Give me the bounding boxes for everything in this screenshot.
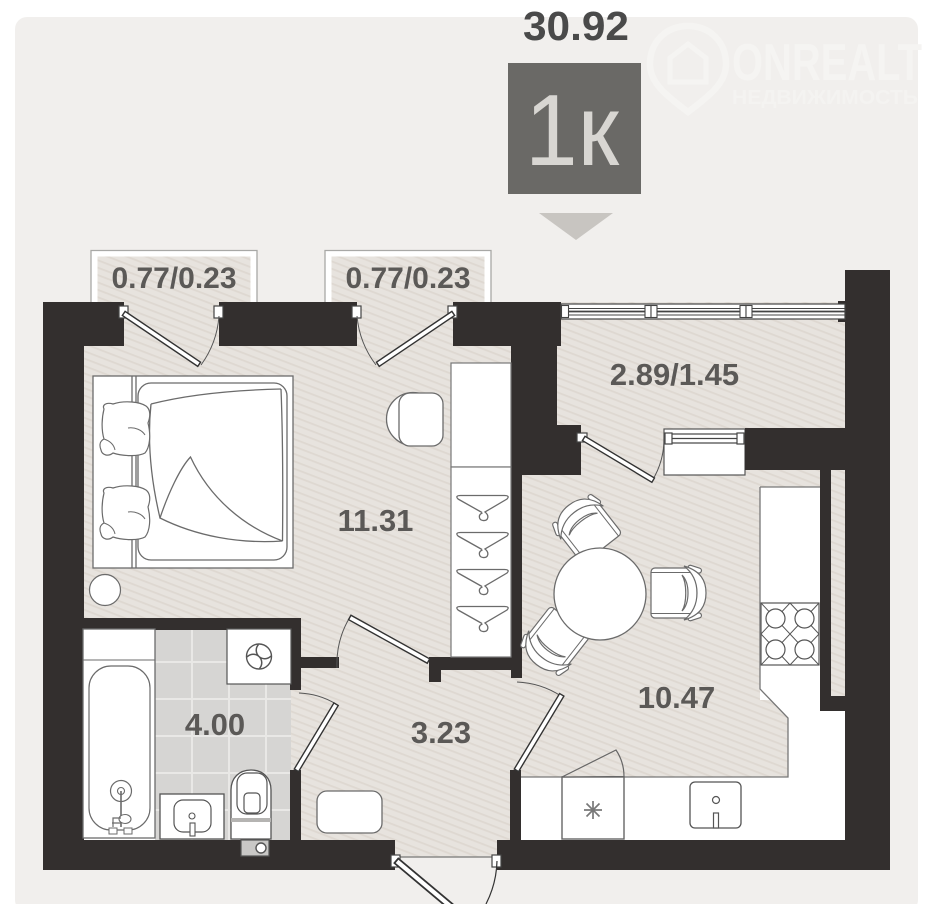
svg-text:3.23: 3.23 <box>411 715 471 750</box>
svg-text:2.89/1.45: 2.89/1.45 <box>610 357 739 392</box>
svg-text:30.92: 30.92 <box>523 3 629 49</box>
svg-text:4.00: 4.00 <box>185 707 245 742</box>
svg-text:НЕДВИЖИМОСТЬ: НЕДВИЖИМОСТЬ <box>732 87 918 109</box>
svg-text:ONREALT: ONREALT <box>732 34 922 92</box>
svg-text:0.77/0.23: 0.77/0.23 <box>345 262 470 295</box>
svg-text:10.47: 10.47 <box>638 680 716 715</box>
svg-text:0.77/0.23: 0.77/0.23 <box>111 262 236 295</box>
svg-text:11.31: 11.31 <box>338 503 414 538</box>
svg-text:1к: 1к <box>525 75 620 187</box>
